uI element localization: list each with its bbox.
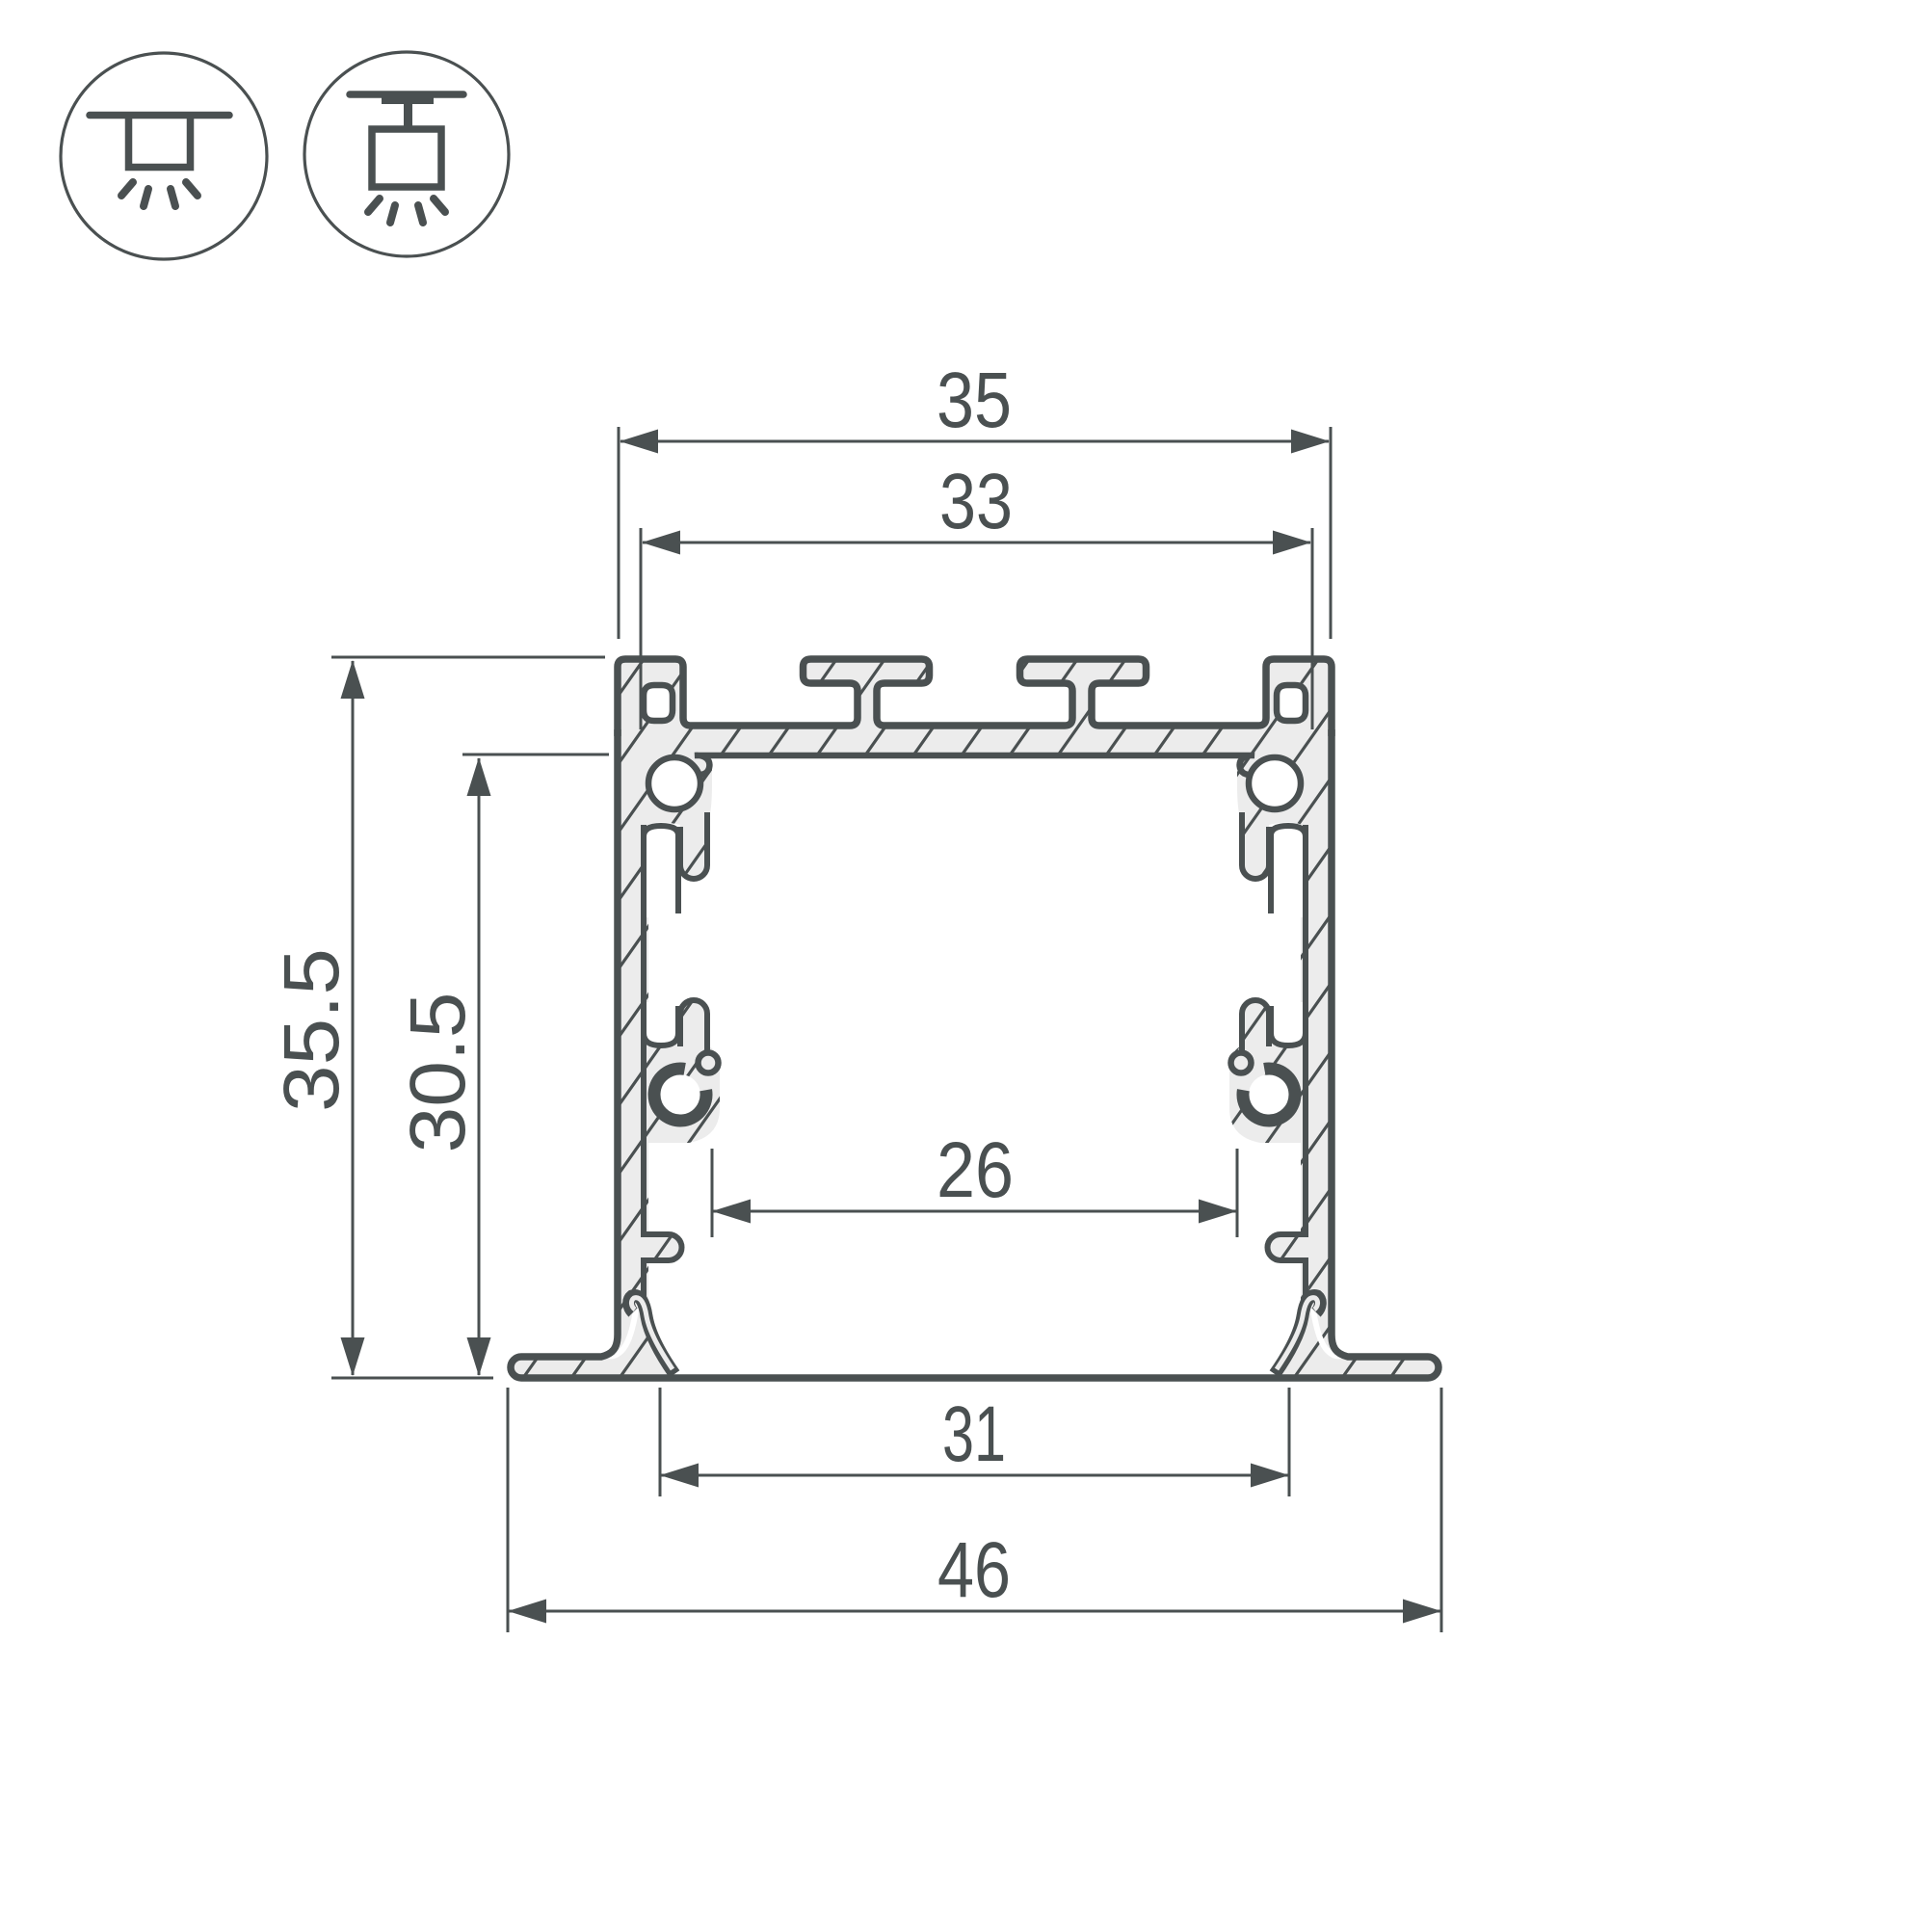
svg-text:31: 31	[942, 1390, 1006, 1478]
svg-text:35: 35	[937, 357, 1012, 444]
svg-text:33: 33	[939, 458, 1013, 545]
svg-text:30.5: 30.5	[394, 992, 482, 1153]
svg-text:26: 26	[937, 1126, 1014, 1214]
svg-text:35.5: 35.5	[268, 948, 356, 1112]
svg-text:46: 46	[937, 1526, 1011, 1614]
